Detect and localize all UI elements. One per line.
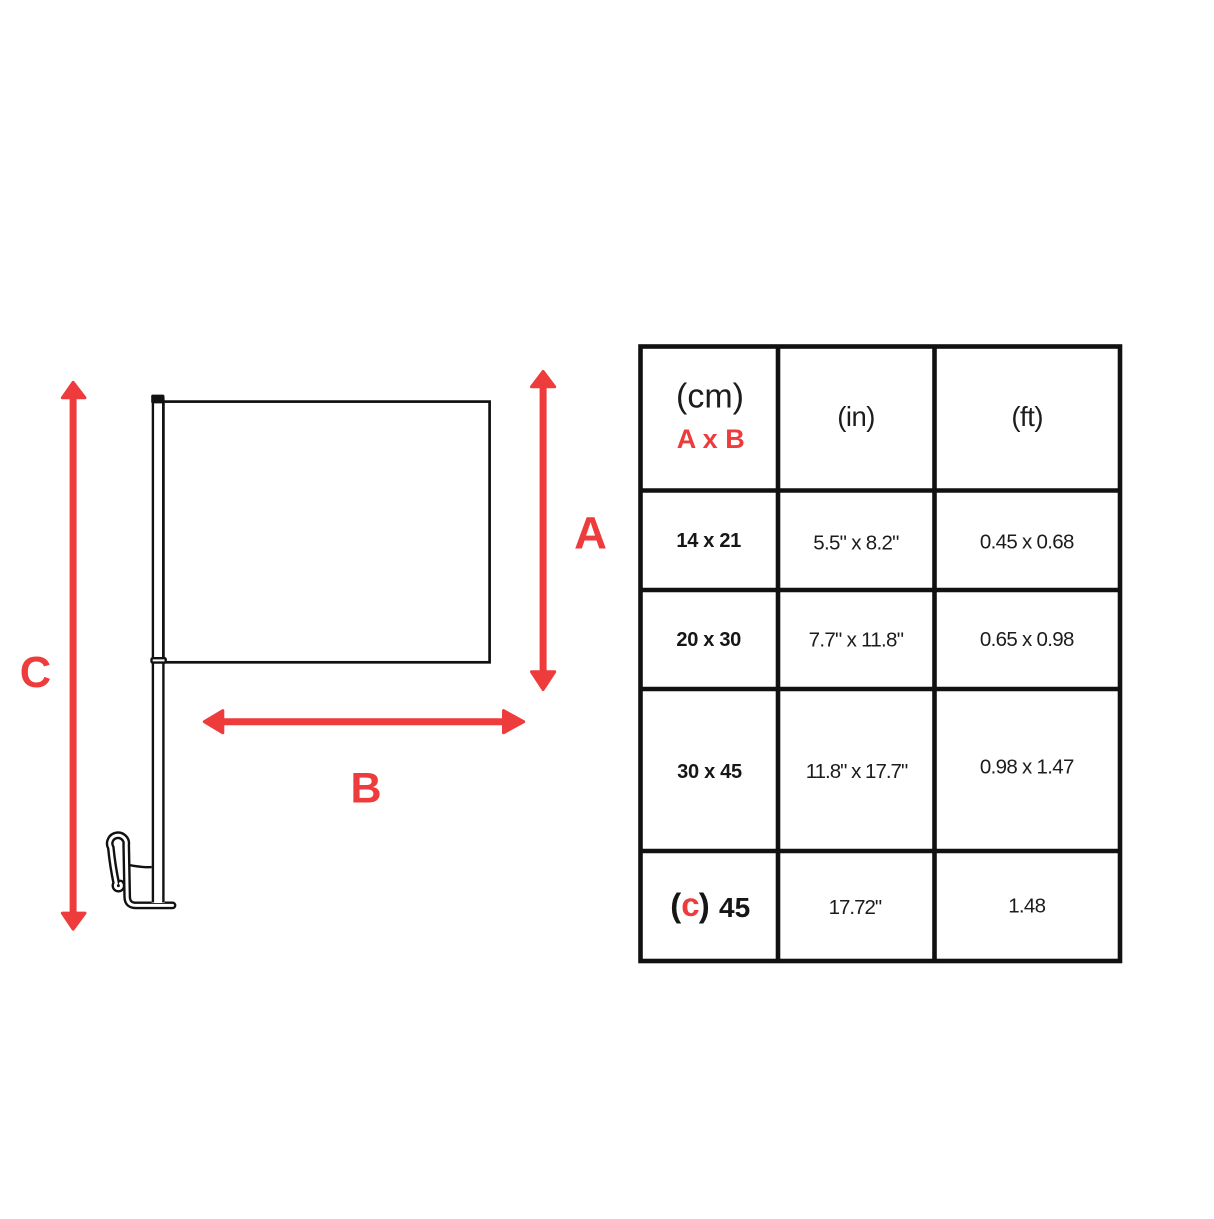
svg-text:0.98 x 1.47: 0.98 x 1.47	[980, 755, 1074, 778]
svg-text:45: 45	[719, 892, 750, 923]
svg-text:(cm): (cm)	[676, 378, 744, 416]
svg-text:7.7" x 11.8": 7.7" x 11.8"	[809, 629, 904, 652]
svg-text:17.72": 17.72"	[829, 896, 882, 919]
svg-text:): )	[699, 887, 710, 924]
svg-text:(ft): (ft)	[1011, 401, 1043, 432]
svg-text:0.65 x 0.98: 0.65 x 0.98	[980, 628, 1074, 651]
svg-text:1.48: 1.48	[1008, 894, 1045, 917]
svg-text:C: C	[20, 649, 51, 697]
svg-text:5.5" x 8.2": 5.5" x 8.2"	[813, 531, 899, 554]
svg-text:B: B	[350, 764, 381, 812]
svg-text:0.45 x 0.68: 0.45 x 0.68	[980, 531, 1074, 554]
svg-text:(: (	[670, 887, 681, 924]
svg-text:A: A	[574, 508, 607, 559]
svg-text:(in): (in)	[837, 401, 875, 432]
svg-text:A x B: A x B	[677, 424, 745, 454]
svg-text:c: c	[681, 886, 699, 923]
svg-text:14 x 21: 14 x 21	[676, 530, 741, 552]
svg-text:30 x 45: 30 x 45	[677, 761, 742, 783]
svg-text:20 x 30: 20 x 30	[676, 629, 741, 651]
svg-text:11.8" x 17.7": 11.8" x 17.7"	[806, 760, 908, 783]
